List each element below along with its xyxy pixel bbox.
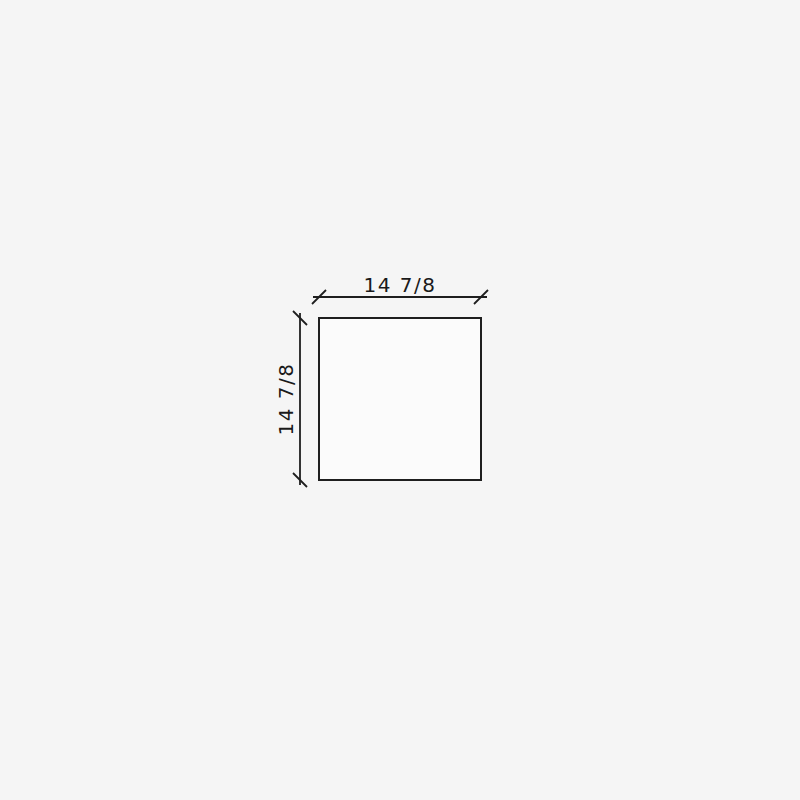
panel-outline xyxy=(319,318,481,480)
drawing-canvas: 14 7/8 14 7/8 xyxy=(0,0,800,800)
height-dimension: 14 7/8 xyxy=(274,311,307,487)
width-dimension-label: 14 7/8 xyxy=(364,273,437,297)
height-dimension-label: 14 7/8 xyxy=(274,363,298,436)
width-dimension: 14 7/8 xyxy=(312,273,488,304)
dimension-drawing: 14 7/8 14 7/8 xyxy=(0,0,800,800)
